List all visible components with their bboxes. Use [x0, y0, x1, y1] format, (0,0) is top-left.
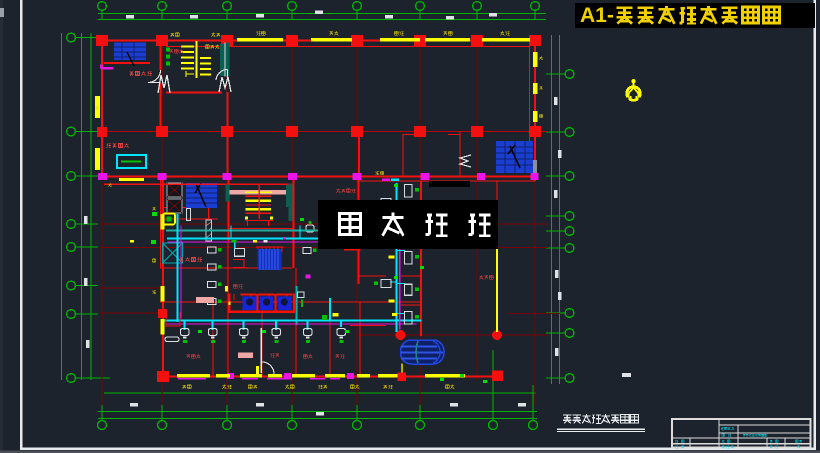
- svg-text:A1-: A1-: [580, 4, 614, 27]
